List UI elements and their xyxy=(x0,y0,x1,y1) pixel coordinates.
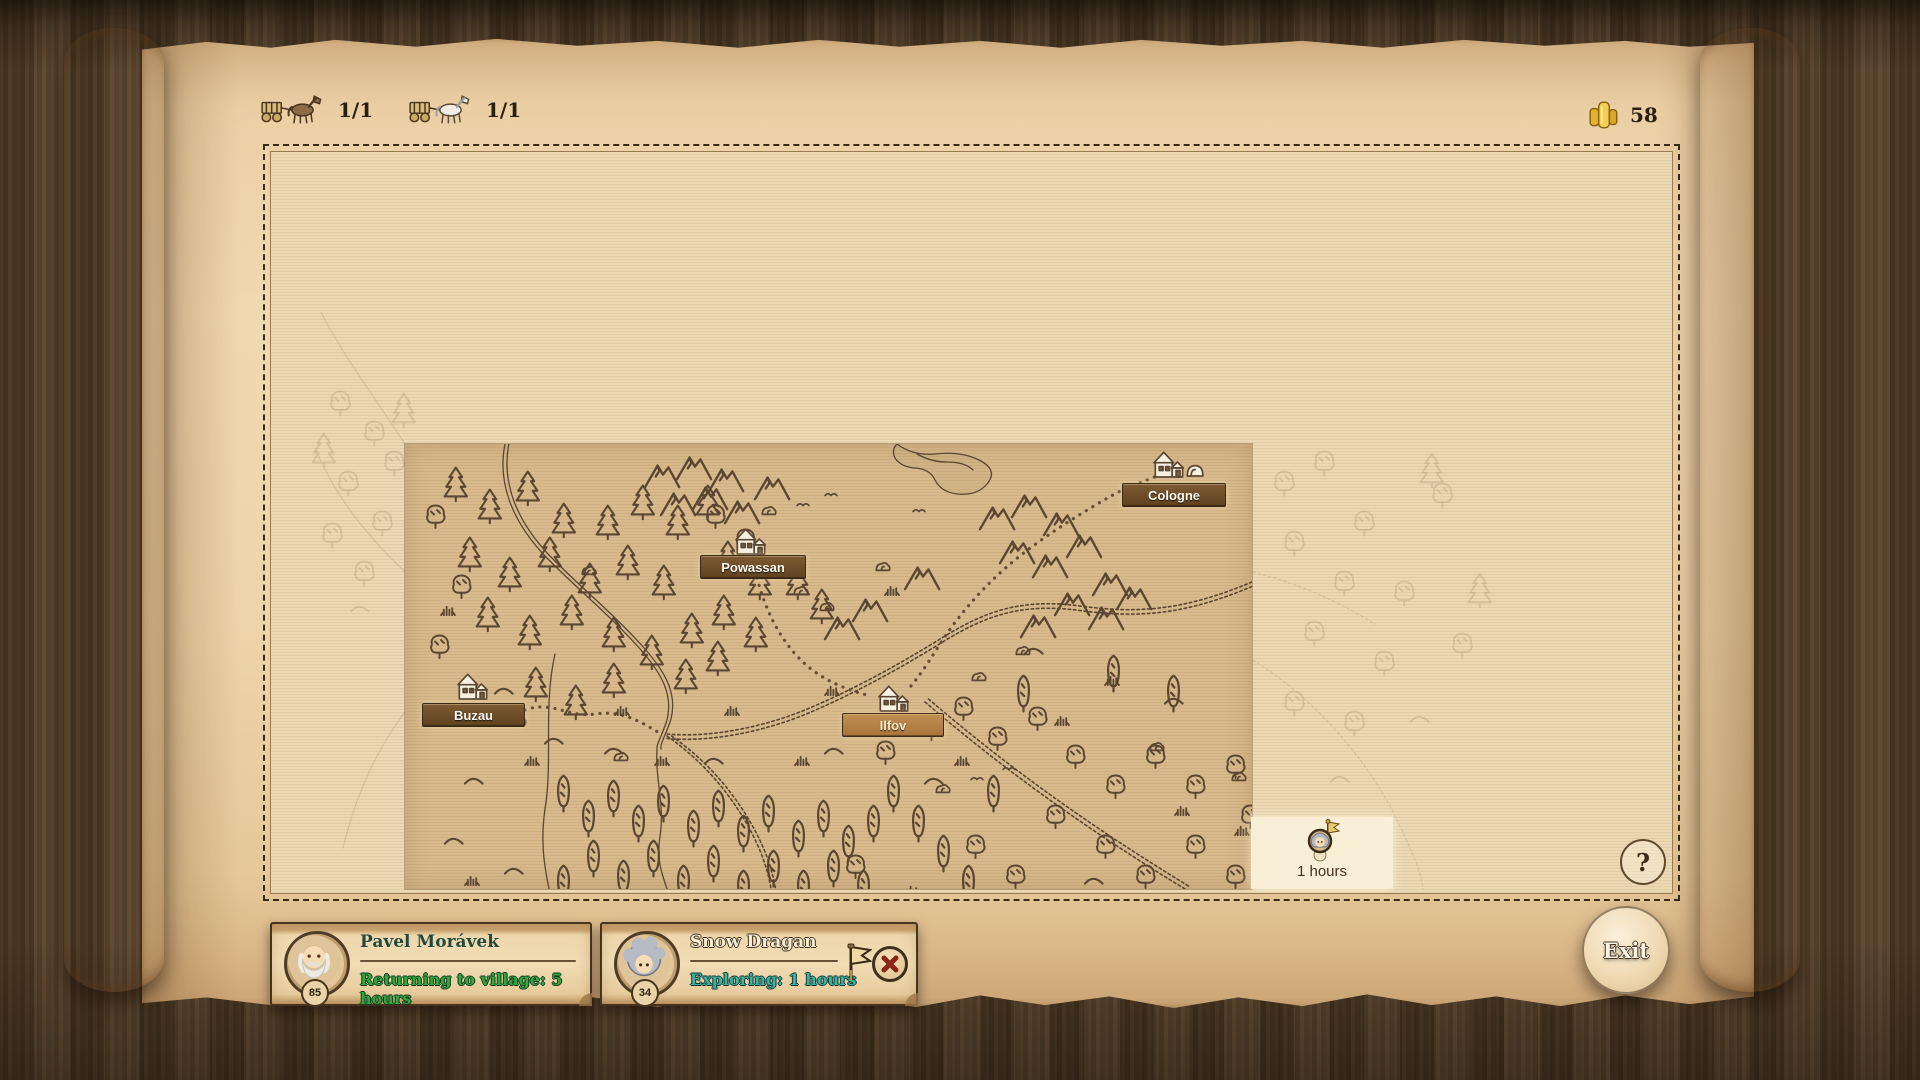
caravan-slot-1: 1/1 xyxy=(260,94,373,126)
level-badge: 34 xyxy=(631,979,659,1007)
question-mark-icon: ? xyxy=(1636,848,1650,877)
caravan-slot-2: 1/1 xyxy=(408,94,521,126)
party-status: Returning to village: 5 hours xyxy=(360,970,590,1008)
party-card-pavel[interactable]: 85 Pavel Morávek Returning to village: 5… xyxy=(270,922,592,1006)
world-map[interactable]: Cologne Powassan Buzau Ilfov 1 hours xyxy=(270,151,1673,894)
explored-map-region[interactable]: Cologne Powassan Buzau Ilfov xyxy=(405,444,1252,889)
party-card-snow[interactable]: 34 Snow Dragan Exploring: 1 hours xyxy=(600,922,918,1006)
selected-party-map-highlight[interactable]: 1 hours xyxy=(1251,817,1393,889)
cancel-x-icon xyxy=(881,955,899,973)
scroll-roll-left xyxy=(64,28,164,992)
cancel-expedition-button[interactable] xyxy=(872,946,908,982)
cart-white-horse-icon xyxy=(408,94,476,126)
gold-amount: 58 xyxy=(1630,103,1658,127)
game-screen: 1/1 1/1 xyxy=(0,0,1920,1080)
gold-coins-icon xyxy=(1588,98,1620,132)
scroll-roll-right xyxy=(1700,28,1800,992)
map-location-ilfov[interactable]: Ilfov xyxy=(842,713,944,737)
caravan-count-1: 1/1 xyxy=(338,98,373,122)
location-label-text: Powassan xyxy=(721,560,785,575)
flag-icon xyxy=(842,942,872,989)
party-status: Exploring: 1 hours xyxy=(690,970,857,989)
level-badge: 85 xyxy=(301,979,329,1007)
map-location-powassan[interactable]: Powassan xyxy=(700,555,806,579)
party-name: Pavel Morávek xyxy=(360,932,499,952)
location-label-text: Buzau xyxy=(454,708,493,723)
map-artwork xyxy=(405,444,1252,889)
card-divider xyxy=(360,960,576,962)
map-location-buzau[interactable]: Buzau xyxy=(422,703,525,727)
help-button[interactable]: ? xyxy=(1620,839,1666,885)
gold-indicator: 58 xyxy=(1588,98,1658,132)
traveler-flag-marker-icon xyxy=(1304,819,1340,863)
travel-time-remaining: 1 hours xyxy=(1251,863,1393,880)
card-divider xyxy=(690,960,838,962)
caravan-count-2: 1/1 xyxy=(486,98,521,122)
location-label-text: Cologne xyxy=(1148,488,1200,503)
location-label-text: Ilfov xyxy=(880,718,907,733)
exit-button[interactable]: Exit xyxy=(1582,906,1670,994)
cart-brown-horse-icon xyxy=(260,94,328,126)
map-location-cologne[interactable]: Cologne xyxy=(1122,483,1226,507)
world-map-frame: Cologne Powassan Buzau Ilfov 1 hours xyxy=(263,144,1680,901)
party-name: Snow Dragan xyxy=(690,932,817,952)
exit-label: Exit xyxy=(1603,938,1649,963)
